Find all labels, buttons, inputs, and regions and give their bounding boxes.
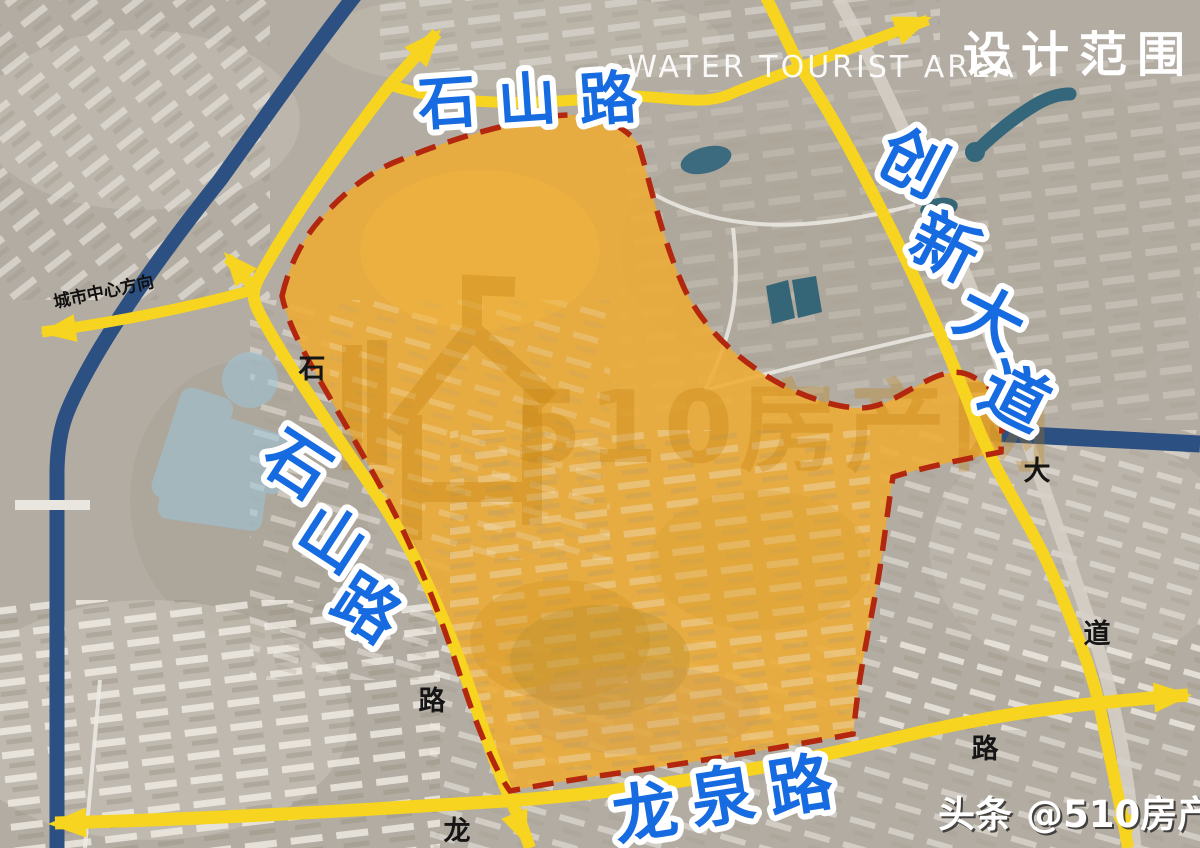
road-name-char: 路 <box>763 745 839 828</box>
road-name-char: 龙 <box>608 772 683 848</box>
label-long-small: 龙 <box>444 816 471 847</box>
road-name-char: 山 <box>496 64 559 136</box>
label-shi: 石 <box>298 354 326 385</box>
pond-hook-end <box>965 142 985 162</box>
road-name-char: 泉 <box>685 756 760 839</box>
map-screenshot: 510房产网 石 路 龙 路 大 道 城市中心方向 石 山 路 石 <box>0 0 1200 848</box>
credit-line: 头条@510房产网 <box>938 793 1200 836</box>
road-name-char: 石 <box>416 67 479 139</box>
label-lu-mid: 路 <box>419 685 447 717</box>
water-tourist-area-label: WATER TOURIST AREA <box>627 50 1016 85</box>
label-dao: 道 <box>1084 618 1111 650</box>
page-title: 设计范围 <box>963 27 1195 83</box>
road-name-shishan-top: 石 山 路 <box>416 63 641 139</box>
map-svg: 510房产网 石 路 龙 路 大 道 城市中心方向 石 山 路 石 <box>0 0 1200 848</box>
label-da: 大 <box>1024 456 1051 487</box>
credit-handle: @510房产网 <box>1026 793 1200 836</box>
canal-bridge <box>15 500 90 510</box>
label-lu-east: 路 <box>972 733 1000 765</box>
credit-source: 头条 <box>938 793 1012 836</box>
